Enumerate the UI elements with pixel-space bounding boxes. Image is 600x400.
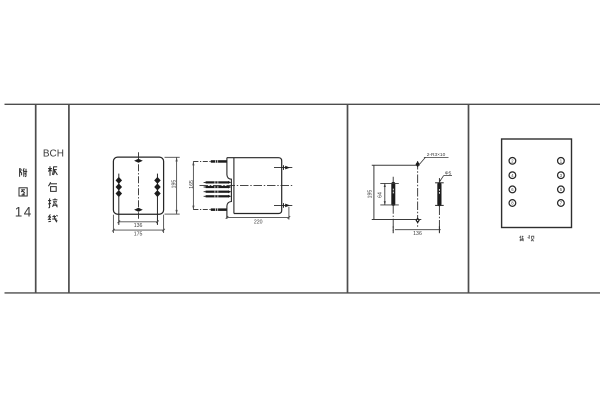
svg-text:1: 1	[560, 158, 563, 163]
svg-text:220: 220	[254, 219, 263, 225]
svg-text:14: 14	[15, 205, 33, 220]
svg-text:3: 3	[560, 173, 563, 178]
svg-text:2-R3×10: 2-R3×10	[427, 152, 446, 158]
svg-text:8: 8	[511, 201, 514, 206]
svg-text:7: 7	[560, 201, 563, 206]
svg-text:6: 6	[511, 187, 514, 192]
svg-text:195: 195	[171, 180, 177, 189]
svg-text:136: 136	[134, 223, 143, 229]
svg-text:2: 2	[511, 158, 514, 163]
svg-text:165: 165	[189, 180, 195, 189]
svg-text:4: 4	[511, 173, 514, 178]
svg-text:195: 195	[368, 190, 374, 199]
svg-text:Φ5: Φ5	[445, 171, 452, 177]
svg-text:64: 64	[378, 192, 384, 198]
svg-text:136: 136	[413, 231, 422, 237]
svg-text:5: 5	[560, 187, 563, 192]
svg-text:BCH: BCH	[43, 148, 64, 159]
svg-text:175: 175	[134, 232, 143, 238]
